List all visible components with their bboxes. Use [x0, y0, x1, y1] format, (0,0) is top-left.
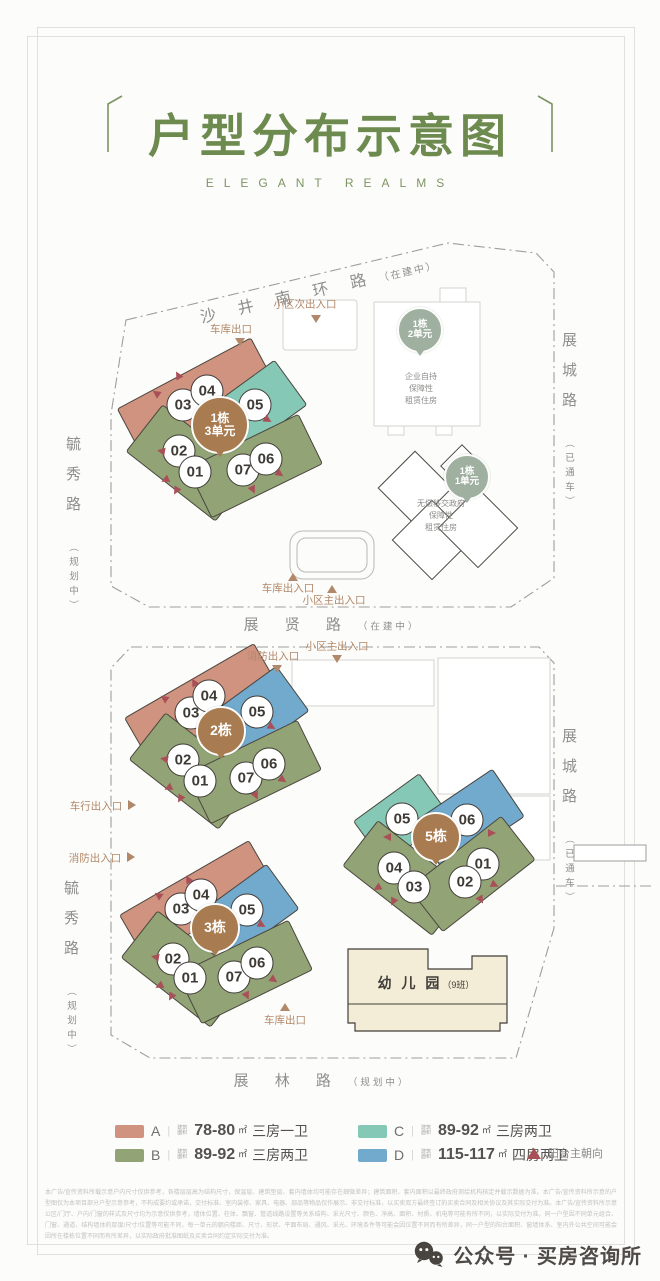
road-yuxiu-map2: 毓秀路（规划中）	[60, 880, 80, 1059]
entrance-side: 小区次出入口	[274, 297, 337, 312]
cluster-pin-1-2: 1栋2单元	[397, 307, 443, 353]
cluster-pin-1-3: 1栋3单元	[191, 396, 249, 454]
road-zhanxian: 展 贤 路（在建中）	[244, 614, 421, 635]
road-zhancheng-map2: 展城路（已通车）	[558, 728, 578, 907]
unit-badge: 01	[179, 456, 212, 489]
unit-badge: 01	[184, 765, 217, 798]
cluster-pin-3: 3栋	[190, 903, 240, 953]
entrance-fire-left: 消防出入口	[69, 851, 122, 866]
cluster-pin-2: 2栋	[196, 706, 246, 756]
tower1-note: 无偿移交政府保障性租赁住房	[417, 498, 465, 534]
brand-label: 公众号 · 买房咨询所	[453, 1240, 642, 1269]
unit-badge: 02	[449, 866, 482, 899]
legend-balcony-marker: 阳台主朝向	[527, 1145, 603, 1161]
cluster-pin-1-1: 1栋1单元	[444, 454, 490, 500]
road-zhanlin: 展 林 路（规划中）	[234, 1070, 411, 1091]
road-yuxiu-map1: 毓秀路（规划中）	[62, 436, 82, 615]
balcony-triangle-icon	[527, 1148, 541, 1159]
legend-swatch-B	[115, 1149, 144, 1162]
legend-swatch-A	[115, 1125, 144, 1138]
wechat-icon	[413, 1241, 445, 1268]
entrance-main-map1: 小区主出入口	[303, 593, 366, 608]
road-zhancheng-map1: 展城路（已通车）	[558, 332, 578, 511]
legend-swatch-D	[358, 1149, 387, 1162]
page-title: 户型分布示意图	[0, 100, 660, 166]
bus-bay-rect	[574, 845, 646, 861]
page-subtitle: ELEGANT REALMS	[0, 176, 660, 190]
legend-item-B: B| 建筑面积 89-92㎡ 三房两卫	[115, 1145, 308, 1165]
unit-badge: 01	[174, 962, 207, 995]
legend-swatch-C	[358, 1125, 387, 1138]
entrance-vehicle: 车行出入口	[70, 799, 123, 814]
disclaimer-text: 本广告/宣传资料所载示意户内尺寸仅供参考，各楼层层高为结构尺寸，保温层、建筑垫层…	[45, 1188, 617, 1243]
kindergarten-label: 幼 儿 园（9班）	[378, 973, 475, 993]
entrance-main-map2: 小区主出入口	[306, 639, 369, 654]
unit-badge: 03	[398, 871, 431, 904]
entrance-fire-top: 消防出入口	[247, 649, 300, 664]
cluster-pin-5: 5栋	[411, 812, 461, 862]
unit-badge: 06	[241, 947, 274, 980]
road-shajing: 沙 井 南 环 路（在建中）	[197, 232, 514, 327]
brand-footer: 公众号 · 买房咨询所	[413, 1240, 642, 1269]
tower2-note: 企业自持保障性租赁住房	[405, 371, 437, 407]
entrance-garage-exit-top: 车库出口	[210, 322, 252, 337]
driveway-outline	[290, 531, 374, 579]
legend-item-C: C| 建筑面积 89-92㎡ 三房两卫	[358, 1121, 552, 1141]
poster-page: 户型分布示意图 ELEGANT REALMS 沙 井 南 环 路（在建中） 展城…	[0, 0, 660, 1281]
legend-item-A: A| 建筑面积 78-80㎡ 三房一卫	[115, 1121, 308, 1141]
entrance-garage-exit-bottom: 车库出口	[264, 1013, 306, 1028]
